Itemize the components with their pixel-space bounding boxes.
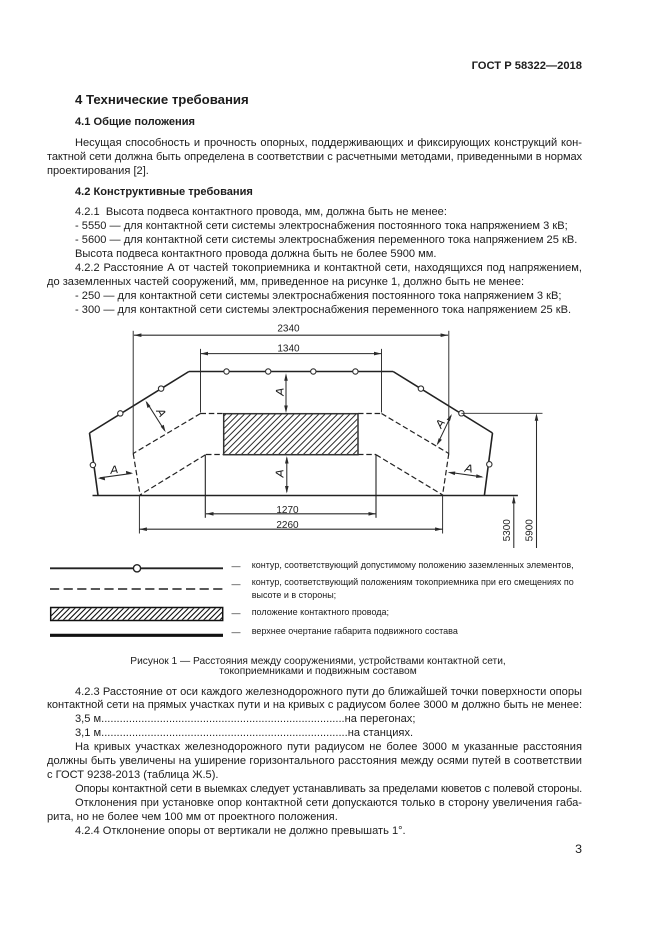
svg-text:2340: 2340 [277,323,300,334]
svg-text:1340: 1340 [277,344,300,355]
svg-text:1270: 1270 [276,505,299,516]
svg-text:5300: 5300 [502,519,513,542]
svg-text:2260: 2260 [276,520,299,531]
svg-text:5900: 5900 [525,519,536,542]
